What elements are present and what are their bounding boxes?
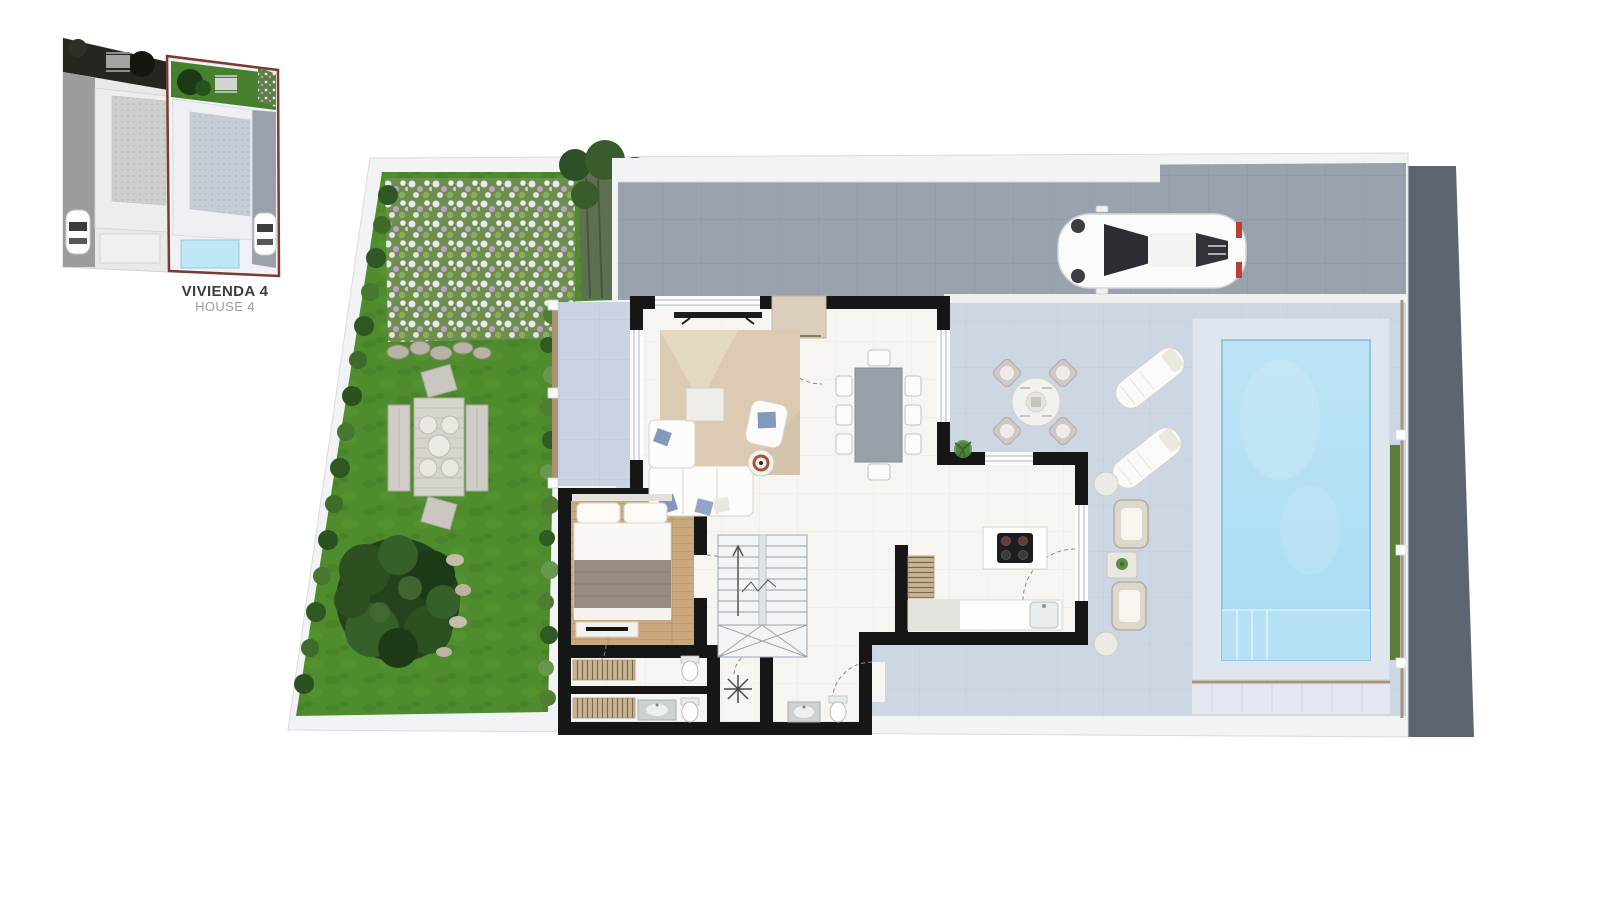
sink-vanity <box>788 702 820 722</box>
pool-lower-deck <box>1192 680 1390 714</box>
bedroom-tv <box>586 627 628 631</box>
fence-post <box>1396 658 1406 668</box>
street <box>1406 166 1474 737</box>
tv <box>674 312 762 318</box>
pantry-shelves <box>908 556 934 598</box>
fence-post <box>1396 545 1406 555</box>
driveway <box>612 158 1406 303</box>
pool-steps <box>1222 610 1370 660</box>
shower-drain <box>724 675 752 703</box>
sink-vanity <box>638 700 676 720</box>
inset-neighbour-car <box>66 210 90 254</box>
potted-plant <box>954 440 972 458</box>
coffee-table <box>686 388 724 421</box>
pillow <box>713 497 730 513</box>
pool-area <box>1192 300 1406 718</box>
side-table <box>1107 552 1137 578</box>
porch-post <box>548 300 558 310</box>
inset-neighbour-pool <box>100 234 160 263</box>
car-wheel <box>1071 269 1085 283</box>
inset-neighbour-garden-table <box>106 55 130 68</box>
wardrobe <box>573 660 635 680</box>
inset-pool <box>181 240 239 268</box>
toilet <box>681 656 699 681</box>
car-roof <box>1148 233 1198 267</box>
porch-post <box>548 388 558 398</box>
main-floor-plan <box>260 130 1490 750</box>
dining-table <box>855 368 902 462</box>
main-floor-plan-svg <box>260 130 1490 750</box>
car-wheel <box>1071 219 1085 233</box>
car-mirror <box>1096 206 1108 212</box>
driveway-low-wall <box>944 294 1406 303</box>
inset-garden-table <box>215 78 237 90</box>
wicker-armchair <box>1112 582 1146 630</box>
bed-pillow <box>624 503 667 523</box>
wardrobe <box>573 698 635 718</box>
cooktop <box>997 533 1033 563</box>
car-tail-light <box>1236 262 1242 278</box>
site-plan-inset-svg <box>55 28 285 283</box>
bed-headboard <box>572 494 672 501</box>
driveway-top-wall <box>612 158 1160 182</box>
car-tail-light <box>1236 222 1242 238</box>
floor-plan-canvas: VIVIENDA 4 HOUSE 4 <box>0 0 1600 898</box>
round-side-table <box>748 450 774 476</box>
side-entry-opening <box>872 662 885 702</box>
porch-post <box>548 478 558 488</box>
site-plan-inset <box>55 28 285 283</box>
car <box>1058 206 1246 294</box>
toilet <box>829 696 847 722</box>
inset-neighbour-plot <box>63 38 168 272</box>
fence-post <box>1396 430 1406 440</box>
pouf <box>1094 472 1118 496</box>
bed-pillow <box>577 503 620 523</box>
pouf <box>1094 632 1118 656</box>
staircase <box>718 535 807 657</box>
toilet <box>681 698 699 722</box>
wicker-armchair <box>1114 500 1148 548</box>
porch <box>548 300 630 488</box>
car-mirror <box>1096 288 1108 294</box>
